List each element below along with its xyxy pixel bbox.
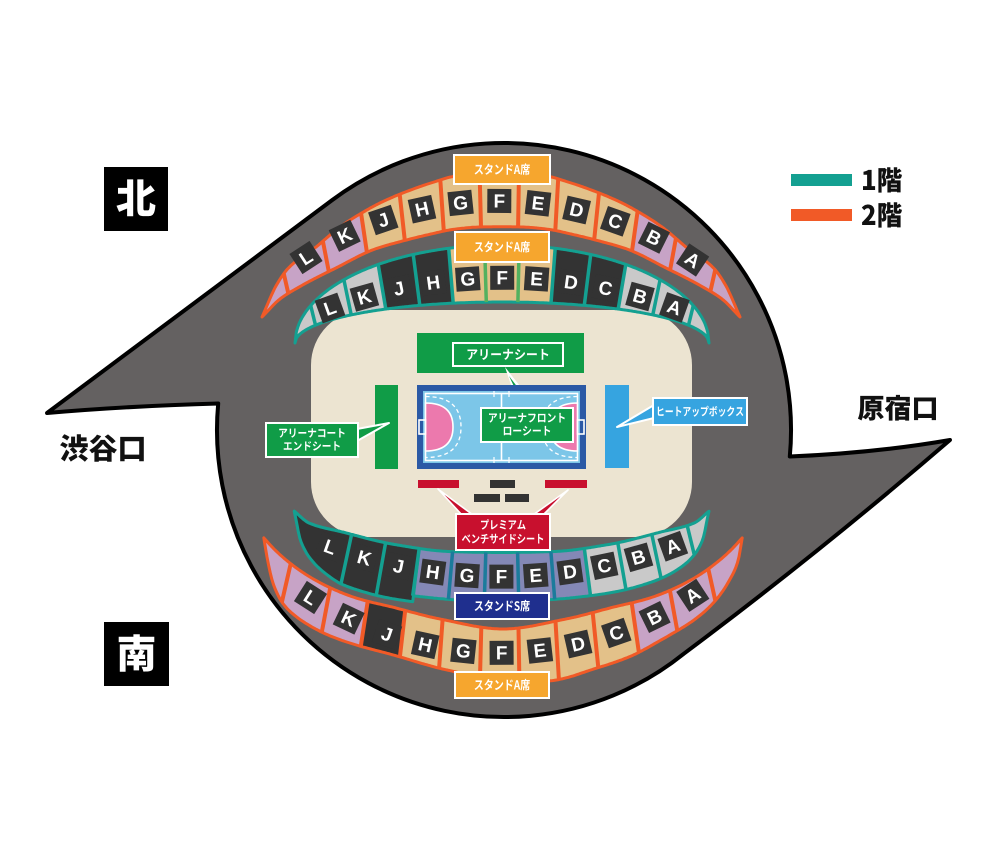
svg-text:D: D bbox=[563, 272, 579, 295]
svg-text:G: G bbox=[452, 193, 469, 215]
svg-text:E: E bbox=[529, 565, 543, 587]
svg-text:G: G bbox=[455, 641, 472, 663]
svg-text:E: E bbox=[533, 640, 548, 662]
svg-text:H: H bbox=[425, 272, 441, 295]
svg-text:F: F bbox=[496, 268, 508, 289]
svg-text:F: F bbox=[496, 567, 508, 588]
svg-text:F: F bbox=[493, 191, 505, 212]
svg-text:F: F bbox=[496, 643, 508, 664]
svg-text:G: G bbox=[460, 269, 476, 291]
svg-text:E: E bbox=[530, 269, 544, 291]
svg-text:G: G bbox=[459, 566, 475, 588]
svg-text:H: H bbox=[424, 562, 440, 585]
svg-text:D: D bbox=[562, 561, 578, 584]
svg-text:E: E bbox=[530, 193, 545, 215]
